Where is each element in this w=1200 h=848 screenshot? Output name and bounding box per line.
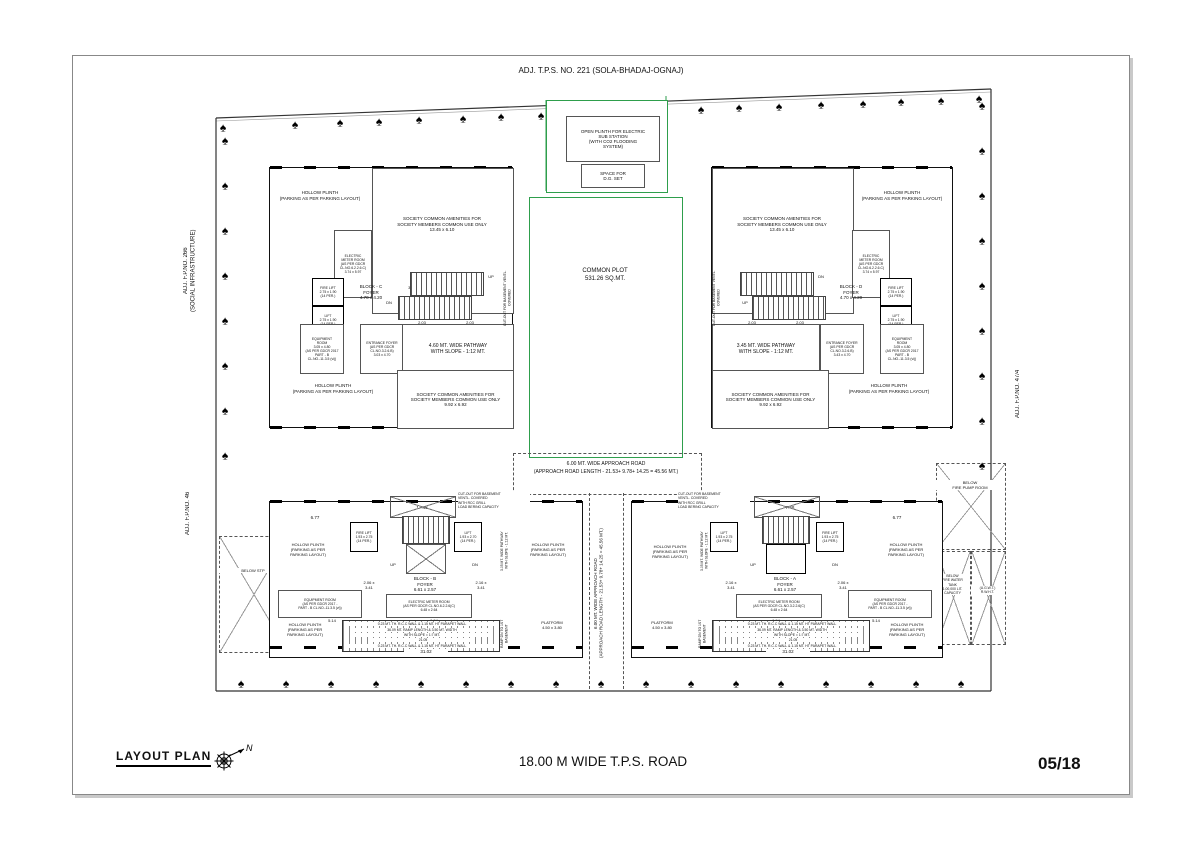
block-c-hollow-plinth-top-label: HOLLOW PLINTH (PARKING AS PER PARKING LA… [270, 190, 370, 201]
block-c-pathway: 4.60 MT. WIDE PATHWAY WITH SLOPE - 1:12 … [402, 324, 514, 374]
adjacent-plot-right-label: ADJ. F.P.NO. 47/4 [1015, 351, 1025, 436]
tree-icon: ♠ [818, 99, 824, 111]
tree-icon: ♠ [979, 99, 985, 111]
block-d-building: SOCIETY COMMON AMENITIES FOR SOCIETY MEM… [711, 167, 953, 428]
block-b-ramp-wall-top-label: 0.23 MT. TH. R.C.C WALL & 1.15 MT. HT PA… [345, 622, 499, 626]
block-d-stair-dn [740, 272, 814, 296]
block-a-building: 7.48 6.77 CUT-OUT FOR BASEMENT VENTL. CO… [631, 501, 943, 658]
tree-icon: ♠ [508, 677, 514, 689]
block-b-lift: LIFT 1.93 x 2.70 (14 PER.) [454, 522, 482, 552]
tree-icon: ♠ [222, 359, 228, 371]
tree-icon: ♠ [979, 414, 985, 426]
dg-set-room: SPACE FOR D.G. SET [581, 164, 645, 188]
block-c-equipment-room: EQUIPMENT ROOM 3.05 x 4.80 (AS PER GDCR … [300, 324, 344, 374]
tree-icon: ♠ [498, 111, 504, 123]
block-a-ramp-slope-label: WITH SLOPE = 1:7 MT. [725, 633, 859, 637]
block-a-foyer-box [766, 544, 806, 574]
tree-icon: ♠ [222, 179, 228, 191]
block-d-up-label: UP [738, 300, 752, 305]
block-b-stair [402, 516, 450, 544]
block-b-title-label: BLOCK - B FOYER 6.61 x 2.57 [402, 576, 448, 593]
tree-icon: ♠ [860, 97, 866, 109]
tree-icon: ♠ [376, 115, 382, 127]
block-b-basement-ramp: 0.23 MT. TH. R.C.C WALL & 1.15 MT. HT PA… [342, 620, 500, 652]
common-plot-label: COMMON PLOT 531.26 SQ.MT. [529, 268, 681, 283]
north-arrow-icon: N [211, 742, 257, 774]
block-c-stair-dn [398, 296, 472, 320]
tree-icon: ♠ [736, 102, 742, 114]
block-b-dim-bottom: 31.02 [404, 649, 448, 655]
tree-icon: ♠ [222, 314, 228, 326]
tree-icon: ♠ [823, 677, 829, 689]
tree-icon: ♠ [222, 224, 228, 236]
block-d-fire-lift: FIRE LIFT 2.75 x 1.90 (14 PER.) [880, 278, 912, 306]
block-c-title-label: BLOCK - C FOYER 4.70 x 4.20 [344, 284, 398, 301]
tree-icon: ♠ [598, 677, 604, 689]
block-c-building: SOCIETY COMMON AMENITIES FOR SOCIETY MEM… [269, 167, 513, 428]
rwht-area [971, 551, 1006, 645]
tree-icon: ♠ [418, 677, 424, 689]
fire-pump-room-area [936, 463, 1006, 550]
block-b-hollow-plinth-bottom-label: HOLLOW PLINTH (PARKING AS PER PARKING LA… [274, 622, 336, 637]
block-b-hollow-plinth-left-label: HOLLOW PLINTH (PARKING AS PER PARKING LA… [276, 542, 340, 557]
tree-icon: ♠ [460, 112, 466, 124]
svg-text:N: N [246, 743, 253, 753]
block-b-ramp-dim: 21.05 [371, 638, 475, 642]
block-d-dn-label: DN [814, 274, 828, 279]
block-a-ramp-wall-bottom-label: 0.23 MT. TH. R.C.C WALL & 1.15 MT. HT PA… [715, 644, 869, 648]
block-b-dn-label: DN [468, 562, 482, 567]
tree-icon: ♠ [337, 117, 343, 129]
tree-icon: ♠ [292, 118, 298, 130]
block-a-lift: LIFT 1.93 x 2.75 (14 PER.) [710, 522, 738, 552]
block-a-up-label: UP [746, 562, 760, 567]
block-b-hollow-plinth-right-label: HOLLOW PLINTH (PARKING AS PER PARKING LA… [518, 542, 578, 557]
block-a-ramp-dim: 21.05 [741, 638, 845, 642]
tree-icon: ♠ [220, 121, 226, 133]
tree-icon: ♠ [553, 677, 559, 689]
block-a-cutout-label: CUT-OUT FOR BASEMENT VENTL. COVERED WITH… [678, 492, 750, 509]
adjacent-plot-left-lower-label: ADJ. F.P.NO. 46 [185, 476, 195, 551]
block-d-hollow-plinth-bottom-label: HOLLOW PLINTH (PARKING AS PER PARKING LA… [826, 383, 952, 394]
block-d-entrance-foyer: ENTRANCE FOYER (AS PER GDCR CL.NO.3.2.6.… [820, 324, 864, 374]
block-c-cutout-side-label: CUT-OUT FOR BASEMENT VENTL. COVERED [503, 263, 511, 333]
block-c-amenities-room-bottom: SOCIETY COMMON AMENITIES FOR SOCIETY MEM… [397, 370, 514, 429]
tree-icon: ♠ [328, 677, 334, 689]
adjacent-plot-top-label: ADJ. T.P.S. NO. 221 (SOLA-BHADAJ-OGNAJ) [451, 66, 751, 76]
block-a-dim-corner: 6.77 [882, 515, 912, 521]
approach-road-edge-left [589, 493, 590, 689]
common-plot [529, 197, 683, 458]
block-a-hollow-plinth-bottom-label: HOLLOW PLINTH (PARKING AS PER PARKING LA… [876, 622, 938, 637]
substation-plinth-room: OPEN PLINTH FOR ELECTRIC SUB STATION (WI… [566, 116, 660, 162]
tree-icon: ♠ [868, 677, 874, 689]
tree-icon: ♠ [958, 677, 964, 689]
tree-icon: ♠ [733, 677, 739, 689]
block-b-ramp-wall-bottom-label: 0.23 MT. TH. R.C.C WALL & 1.15 MT. HT PA… [345, 644, 499, 648]
block-a-ramp-wall-top-label: 0.23 MT. TH. R.C.C WALL & 1.15 MT. HT PA… [715, 622, 869, 626]
tree-icon: ♠ [776, 100, 782, 112]
fire-pump-room-label: BELOW FIRE PUMP ROOM [936, 480, 1004, 490]
block-c-dn-label: DN [382, 300, 396, 305]
block-a-dim-bottom: 31.02 [766, 649, 810, 655]
tree-icon: ♠ [416, 114, 422, 126]
block-b-ramp-slope-label: WITH SLOPE = 1:7 MT. [355, 633, 489, 637]
tree-icon: ♠ [913, 677, 919, 689]
tree-icon: ♠ [938, 94, 944, 106]
tree-icon: ♠ [979, 279, 985, 291]
block-a-dn-label: DN [828, 562, 842, 567]
tree-icon: ♠ [222, 134, 228, 146]
block-b-basement-cutout [390, 496, 456, 518]
tree-icon: ♠ [222, 449, 228, 461]
block-b-dim-corner: 6.77 [300, 515, 330, 521]
block-d-title-label: BLOCK - D FOYER 4.70 x 4.20 [824, 284, 878, 301]
block-a-title-label: BLOCK - A FOYER 6.61 x 2.57 [762, 576, 808, 593]
plan-title: LAYOUT PLAN [116, 749, 211, 767]
approach-road-turnaround [513, 453, 702, 495]
block-a-equipment-room: EQUIPMENT ROOM (AS PER GDCR 2017 - PART … [848, 590, 932, 618]
block-b-up-label: UP [386, 562, 400, 567]
tree-icon: ♠ [979, 189, 985, 201]
block-d-amenities-room-bottom: SOCIETY COMMON AMENITIES FOR SOCIETY MEM… [712, 370, 829, 429]
block-b-cutout-label: CUT-OUT FOR BASEMENT VENTL. COVERED WITH… [458, 492, 530, 509]
block-c-entrance-foyer: ENTRANCE FOYER (AS PER GDCR CL.NO.3.2.6.… [360, 324, 404, 374]
block-a-platform-label: PLATFORM 4.50 x 3.80 [636, 620, 688, 630]
block-a-electric-meter-room: ELECTRIC METER ROOM (AS PER GDCR CL.NO.3… [736, 594, 822, 618]
block-a-fire-lift: FIRE LIFT 1.93 x 2.75 (14 PER.) [816, 522, 844, 552]
block-b-platform-label: PLATFORM 4.50 x 3.80 [526, 620, 578, 630]
tree-icon: ♠ [643, 677, 649, 689]
tps-road-label: 18.00 M WIDE T.P.S. ROAD [433, 754, 773, 769]
tree-icon: ♠ [283, 677, 289, 689]
tree-icon: ♠ [979, 144, 985, 156]
block-a-pathway-label: 3.05 MT. WIDE PATHWAY WITH SLOPE - 1:12 … [700, 522, 712, 580]
block-b-ramp-length-label: 36.09 MT. RAMP LENGTH & 3.50 MT. WIDTH [355, 628, 489, 632]
layout-plan-sheet: ♠♠♠♠♠♠♠♠♠♠♠♠♠♠♠♠♠♠♠♠♠♠♠♠♠♠♠♠♠♠♠♠♠♠♠♠♠♠♠♠… [0, 0, 1200, 848]
tree-icon: ♠ [778, 677, 784, 689]
block-b-building: 17.48 6.77 CUT-OUT FOR BASEMENT VENTL. C… [269, 501, 583, 658]
block-d-pathway: 3.45 MT. WIDE PATHWAY WITH SLOPE - 1:12 … [712, 324, 820, 374]
tree-icon: ♠ [538, 109, 544, 121]
block-a-room-left-dim: 2.16 x 3.41 [716, 580, 746, 590]
adjacent-plot-left-upper-label: ADJ. F.P.NO. 266 (SOCIAL INFRASTRUCTURE) [183, 206, 199, 336]
tree-icon: ♠ [979, 234, 985, 246]
tree-icon: ♠ [373, 677, 379, 689]
block-a-ramp-dn-label: RAMP DN TO 1ST BASEMENT [698, 614, 710, 654]
sheet-number: 05/18 [1038, 754, 1081, 774]
approach-road-edge-right [623, 493, 624, 689]
block-b-fire-lift: FIRE LIFT 1.93 x 2.75 (14 PER.) [350, 522, 378, 552]
tree-icon: ♠ [222, 269, 228, 281]
block-c-up-label: UP [484, 274, 498, 279]
block-b-room-left-dim: 2.06 x 3.41 [354, 580, 384, 590]
block-d-equipment-room: EQUIPMENT ROOM 3.05 x 4.80 (AS PER GDCR … [880, 324, 924, 374]
approach-road-vertical-label: 6.00 MT. WIDE APPROACH ROAD (APPROACH RO… [593, 521, 615, 666]
block-d-cutout-side-label: CUT-OUT FOR BASEMENT VENTL. COVERED [712, 263, 720, 333]
tree-icon: ♠ [698, 103, 704, 115]
block-d-amenities-top-label: SOCIETY COMMON AMENITIES FOR SOCIETY MEM… [714, 216, 850, 233]
block-a-ramp-length-label: 36.09 MT. RAMP LENGTH & 3.50 MT. WIDTH [725, 628, 859, 632]
drawing-frame: ♠♠♠♠♠♠♠♠♠♠♠♠♠♠♠♠♠♠♠♠♠♠♠♠♠♠♠♠♠♠♠♠♠♠♠♠♠♠♠♠… [72, 55, 1130, 795]
block-a-hollow-plinth-left-label: HOLLOW PLINTH (PARKING AS PER PARKING LA… [638, 544, 702, 559]
tree-icon: ♠ [463, 677, 469, 689]
block-b-equipment-room: EQUIPMENT ROOM (AS PER GDCR 2017 - PART … [278, 590, 362, 618]
block-a-room-right-dim: 2.06 x 3.41 [828, 580, 858, 590]
tree-icon: ♠ [688, 677, 694, 689]
rwht-label: (U.G.W.T.) R.W.H.T. [971, 586, 1004, 595]
block-c-hollow-plinth-bottom-label: HOLLOW PLINTH (PARKING AS PER PARKING LA… [270, 383, 396, 394]
block-b-electric-meter-room: ELECTRIC METER ROOM (AS PER GDCR CL.NO.6… [386, 594, 472, 618]
tree-icon: ♠ [222, 404, 228, 416]
block-c-amenities-top-label: SOCIETY COMMON AMENITIES FOR SOCIETY MEM… [374, 216, 510, 233]
block-a-basement-cutout [754, 496, 820, 518]
tree-icon: ♠ [979, 324, 985, 336]
block-c-stair-up [410, 272, 484, 296]
block-b-pathway-label: 3.05 MT. WIDE PATHWAY WITH SLOPE - 1:12 … [500, 522, 512, 580]
block-a-stair [762, 516, 810, 544]
block-b-foyer-cutout [406, 544, 446, 574]
tree-icon: ♠ [979, 369, 985, 381]
block-c-fire-lift: FIRE LIFT 2.75 x 1.90 (14 PER.) [312, 278, 344, 306]
tree-icon: ♠ [238, 677, 244, 689]
block-a-basement-ramp: 0.23 MT. TH. R.C.C WALL & 1.15 MT. HT PA… [712, 620, 870, 652]
block-a-hollow-plinth-right-label: HOLLOW PLINTH (PARKING AS PER PARKING LA… [876, 542, 936, 557]
block-d-hollow-plinth-top-label: HOLLOW PLINTH (PARKING AS PER PARKING LA… [852, 190, 952, 201]
tree-icon: ♠ [898, 96, 904, 108]
block-d-stair-up [752, 296, 826, 320]
block-b-ramp-dn-label: RAMP DN TO 1ST BASEMENT [500, 614, 512, 654]
block-b-room-right-dim: 2.16 x 3.41 [466, 580, 496, 590]
